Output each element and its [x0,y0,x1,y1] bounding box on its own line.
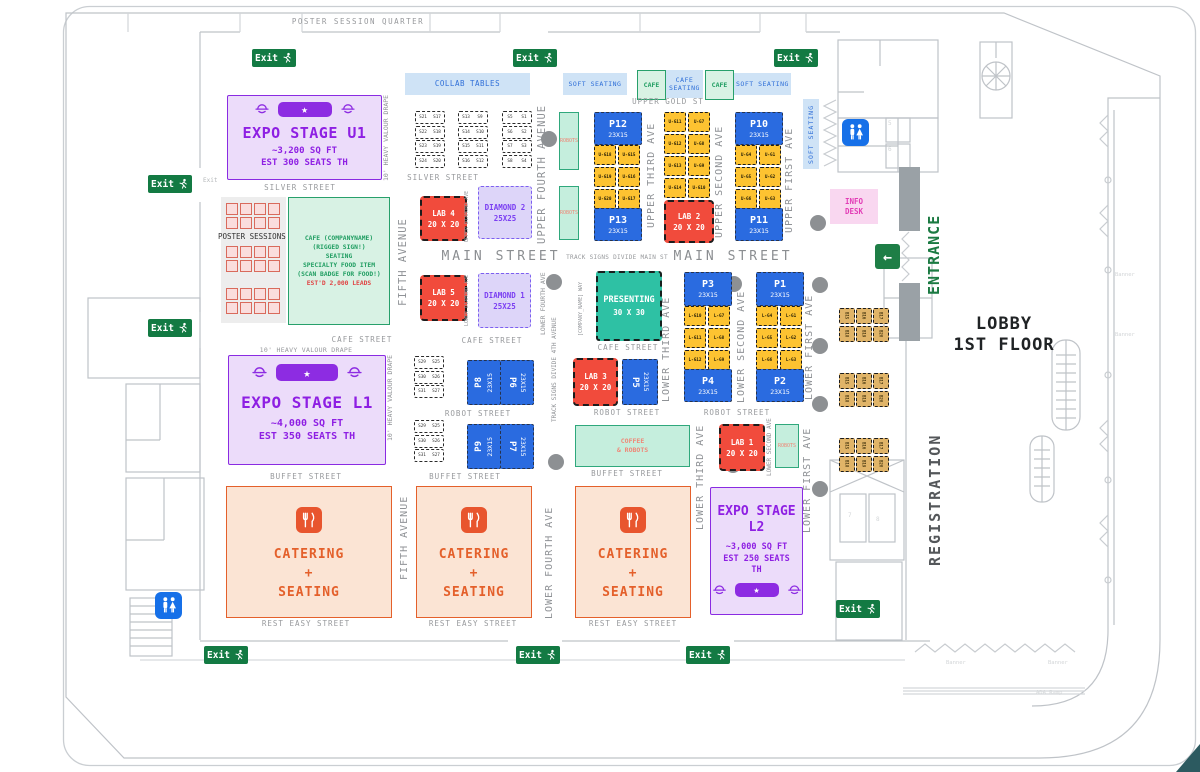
exit-text: Exit [151,179,174,190]
info-desk-line1: INFO [845,197,863,207]
pavilion-size: 23X15 [698,291,718,299]
booth-row[interactable]: S16S12 [458,155,488,168]
poster-session-quarter-label: POSTER SESSION QUARTER [292,17,424,26]
booth-row[interactable]: L-G4L-G1 [756,306,802,326]
cafe-zone[interactable]: CAFE [705,70,734,100]
banner-note: Banner [946,660,966,666]
booth-label: L-G6 [756,350,778,370]
booth-row[interactable]: S22S18 [415,126,445,139]
lobby-line2: 1ST FLOOR [945,335,1063,356]
pavilion-p8[interactable]: P8 23X15 [467,360,501,405]
catering-line1: CATERING [439,545,510,564]
elevator-8-label: 8 [876,516,880,523]
booth-label: U-G20 [594,189,616,209]
catering-line1: CATERING [274,545,345,564]
booth-row[interactable]: S13S9 [458,111,488,124]
poster-table [226,288,238,300]
pavilion-size: 23X15 [749,131,769,139]
booth-row[interactable]: S29S25 [414,420,444,433]
booth-row[interactable]: U-G5U-G2 [735,167,781,187]
booth-cell[interactable]: B16 [856,438,872,454]
stage-star-badge: ★ [276,364,338,381]
robot-street-label: ROBOT STREET [445,409,511,418]
exit-text: Exit [777,53,800,64]
diamond-name: DIAMOND 1 [484,290,525,301]
booth-row[interactable]: U-G13U-G9 [664,156,710,176]
pavilion-name: P5 [630,377,640,388]
lab-name: LAB 5 [432,287,455,298]
booth-label: S24 [416,156,430,167]
lower-fourth-ave-label: LOWER FOURTH AVE [539,272,547,336]
booth-label: S20 [430,156,444,167]
pavilion-name: P2 [774,376,786,387]
poster-table [268,203,280,215]
exit-text: Exit [151,323,174,334]
booth-label: S27 [429,386,443,397]
stage-l2-title-line2: L2 [717,520,795,536]
poster-sessions-label: POSTER SESSIONS [218,232,286,241]
rest-easy-street-label: REST EASY STREET [262,619,350,628]
booth-label: L-G1 [780,306,802,326]
booth-row[interactable]: U-G6U-G3 [735,189,781,209]
lower-first-ave-label: LOWER FIRST AVE [804,296,815,398]
booth-row[interactable]: S21S17 [415,111,445,124]
entrance-arrow-icon: ← [875,244,900,269]
pavilion-size: 23X15 [642,372,650,392]
poster-table [254,302,266,314]
catering-line2: + [439,564,510,583]
b-booth-cluster: B15B16B17B18B19B20 [839,373,889,407]
cafe-street-label: CAFE STREET [598,343,659,352]
poster-table [226,217,238,229]
booth-row[interactable]: S31S27 [414,385,444,398]
lab-3[interactable]: LAB 3 20 X 20 [573,358,618,406]
lab-1[interactable]: LAB 1 20 X 20 [719,424,765,471]
cafe-seating-zone[interactable]: CAFE SEATING [666,70,703,98]
booth-label: S6 [503,127,517,138]
booth-label: S4 [517,156,531,167]
fork-knife-icon [461,507,487,533]
exit-note: Exit [203,177,217,184]
cafe-block-line: (RIGGED SIGN!) [312,243,365,252]
booth-cell[interactable]: B20 [873,326,889,342]
running-man-icon [715,649,727,661]
b-booth-cluster: B15B16B17B18B19B20 [839,438,889,472]
poster-table [254,203,266,215]
coffee-robots-zone[interactable]: COFFEE & ROBOTS [575,425,690,467]
stage-l1-title: EXPO STAGE L1 [241,393,373,412]
booth-row[interactable]: S31S27 [414,449,444,462]
drape-label-u1: 10' HEAVY VALOUR DRAPE [382,94,390,182]
presenting-zone[interactable]: PRESENTING 30 X 30 [596,271,662,341]
exit-sign: Exit [204,646,248,664]
booth-label: L-G2 [780,328,802,348]
booth-row[interactable]: S6S2 [502,126,532,139]
booth-row[interactable]: U-G14U-G10 [664,178,710,198]
booth-row[interactable]: L-G11L-G8 [684,328,730,348]
pavilion-p12[interactable]: P12 23X15 [594,112,642,145]
exit-sign: Exit [686,646,730,664]
poster-table [240,260,252,272]
banner-note: Banner [1115,332,1135,338]
running-man-icon [177,178,189,190]
speaker-icon [251,367,268,379]
soft-seating-zone[interactable]: SOFT SEATING [563,73,627,95]
booth-label: S30 [415,372,429,383]
pavilion-size: 23X15 [519,437,527,457]
buffet-street-label: BUFFET STREET [270,472,342,481]
expo-stage-l1[interactable]: ★ EXPO STAGE L1 ~4,000 SQ FT EST 350 SEA… [228,355,386,465]
cafe-street-label: CAFE STREET [332,335,393,344]
booth-row[interactable]: L-G12L-G9 [684,350,730,370]
cafe-block-line: (SCAN BADGE FOR FOOD!) [297,270,380,279]
catering-line3: SEATING [439,583,510,602]
booth-label: U-G4 [735,145,757,165]
buffet-street-label: BUFFET STREET [591,469,663,478]
collab-tables-zone[interactable]: COLLAB TABLES [405,73,530,95]
booth-cell[interactable]: B19 [856,456,872,472]
speaker-icon [712,585,727,596]
booth-label: U-G14 [664,178,686,198]
booth-cell[interactable]: B18 [839,391,855,407]
cafe-zone[interactable]: CAFE [637,70,666,100]
pavilion-name: P3 [702,279,714,290]
speaker-icon [254,104,270,115]
booth-label: U-G15 [618,145,640,165]
booth-row[interactable]: L-G6L-G3 [756,350,802,370]
entrance-wall-segment [899,283,920,341]
silver-booth-group-1: S21S17S22S18S23S19S24S20 [415,111,445,169]
booth-label: U-G11 [664,112,686,132]
lab-5[interactable]: LAB 5 20 X 20 [420,275,467,321]
pavilion-name: P13 [609,215,627,226]
expo-stage-l2[interactable]: EXPO STAGE L2 ~3,000 SQ FT EST 250 SEATS… [710,487,803,615]
soft-seating-vertical-label: SOFT SEATING [807,105,815,164]
pavilion-name: P8 [474,377,484,388]
diamond-size: 25X25 [493,301,516,312]
cafe-block-leads: EST'D 2,000 LEADS [307,279,371,288]
elevator-5-label: 5 [888,120,892,127]
booth-label: U-G10 [688,178,710,198]
booth-cell[interactable]: B17 [873,373,889,389]
lab-4[interactable]: LAB 4 20 X 20 [420,196,467,241]
upper-gold-st-label: UPPER GOLD ST [632,97,704,106]
booth-cell[interactable]: B16 [856,308,872,324]
pavilion-p10[interactable]: P10 23X15 [735,112,783,145]
booth-label: S18 [430,127,444,138]
lobby-label: LOBBY 1ST FLOOR [945,314,1063,356]
upper-fourth-avenue-label: UPPER FOURTH AVENUE [536,110,548,238]
lab-2[interactable]: LAB 2 20 X 20 [664,200,714,243]
cafe-seating-line1: CAFE [676,76,694,84]
lower-third-ave-label: LOWER THIRD AVE [661,300,672,398]
lab-name: LAB 2 [678,211,701,222]
poster-table [240,246,252,258]
booth-row[interactable]: U-G18U-G15 [594,145,640,165]
robot-street-label: ROBOT STREET [704,408,770,417]
lab-size: 20 X 20 [726,448,758,459]
diamond-name: DIAMOND 2 [485,202,526,213]
running-man-icon [542,52,554,64]
booth-cell[interactable]: B17 [873,438,889,454]
robots-zone[interactable]: ROBOTS [775,424,799,468]
booth-label: S25 [429,357,443,368]
booth-row[interactable]: S30S26 [414,371,444,384]
pavilion-name: P11 [750,215,768,226]
booth-label: U-G19 [594,167,616,187]
catering-seating-zone-2[interactable]: CATERING + SEATING [416,486,532,618]
lab-name: LAB 1 [731,437,754,448]
main-street-label: MAIN STREET [441,249,560,264]
upper-g-booths-left: U-G18U-G15U-G19U-G16U-G20U-G17 [594,145,640,211]
expo-stage-u1[interactable]: ★ EXPO STAGE U1 ~3,200 SQ FT EST 300 SEA… [227,95,382,180]
booth-label: S8 [503,156,517,167]
exit-text: Exit [689,650,712,661]
booth-label: S11 [473,141,487,152]
booth-row[interactable]: S15S11 [458,140,488,153]
booth-row[interactable]: U-G19U-G16 [594,167,640,187]
pavilion-size: 23X15 [486,437,494,457]
pavilion-name: P12 [609,119,627,130]
expo-floor-plan: 5 6 7 8 Banner Banner Banner Banner ADA … [0,0,1200,772]
booth-row[interactable]: S8S4 [502,155,532,168]
info-desk[interactable]: INFO DESK [830,189,878,224]
booth-row[interactable]: S24S20 [415,155,445,168]
restroom-icon [842,119,869,146]
booth-row[interactable]: U-G4U-G1 [735,145,781,165]
entrance-label: ENTRANCE [925,203,943,307]
booth-cell[interactable]: B20 [873,456,889,472]
registration-label: REGISTRATION [926,410,944,590]
pavilion-p4[interactable]: P4 23X15 [684,369,732,402]
diamond-size: 25X25 [494,213,517,224]
exit-text: Exit [516,53,539,64]
pavilion-p2[interactable]: P2 23X15 [756,369,804,402]
track-signs-4th-note: TRACK SIGNS DIVIDE 4TH AVENUE [551,312,558,427]
booth-row[interactable]: L-G5L-G2 [756,328,802,348]
lab-size: 20 X 20 [580,382,612,393]
speaker-icon [340,104,356,115]
lobby-line1: LOBBY [945,314,1063,335]
booth-label: S5 [503,112,517,123]
diamond-2[interactable]: DIAMOND 2 25X25 [478,186,532,239]
drape-label-l1-top: 10' HEAVY VALOUR DRAPE [260,346,353,354]
exit-sign: Exit [516,646,560,664]
exit-text: Exit [255,53,278,64]
booth-row[interactable]: U-G12U-G8 [664,134,710,154]
booth-label: S26 [429,372,443,383]
booth-row[interactable]: S7S3 [502,140,532,153]
booth-label: L-G4 [756,306,778,326]
booth-row[interactable]: S5S1 [502,111,532,124]
stage-u1-seats: EST 300 SEATS TH [261,158,348,168]
booth-row[interactable]: U-G20U-G17 [594,189,640,209]
pavilion-size: 23X15 [749,227,769,235]
booth-label: S15 [459,141,473,152]
pavilion-size: 23X15 [770,388,790,396]
stage-l2-seats-line2: TH [723,565,790,576]
upper-diamond-ave-label: UPPER DIAMOND AVE [464,196,470,236]
booth-label: S22 [416,127,430,138]
poster-table-cluster [226,246,280,272]
speaker-icon [346,367,363,379]
restroom-icon [155,592,182,619]
booth-label: S16 [459,156,473,167]
booth-label: L-G7 [708,306,730,326]
booth-cell[interactable]: B18 [839,456,855,472]
booth-label: U-G18 [594,145,616,165]
pavilion-size: 23X15 [608,227,628,235]
pavilion-p3[interactable]: P3 23X15 [684,272,732,306]
stage-l1-sqft: ~4,000 SQ FT [271,418,343,429]
silver-street-label: SILVER STREET [264,183,336,192]
pavilion-p13[interactable]: P13 23X15 [594,208,642,241]
booth-label: S29 [415,357,429,368]
booth-row[interactable]: S30S26 [414,435,444,448]
booth-label: S19 [430,141,444,152]
booth-cell[interactable]: B17 [873,308,889,324]
booth-label: U-G3 [759,189,781,209]
booth-cell[interactable]: B19 [856,326,872,342]
booth-row[interactable]: S29S25 [414,356,444,369]
exit-sign: Exit [252,49,296,67]
pavilion-size: 23X15 [698,388,718,396]
catering-line2: + [274,564,345,583]
cafe-street-label: CAFE STREET [462,336,523,345]
booth-cell[interactable]: B18 [839,326,855,342]
poster-table-cluster [226,288,280,314]
booth-row[interactable]: S14S10 [458,126,488,139]
pavilion-name: P4 [702,376,714,387]
soft-seating-vertical-zone[interactable]: SOFT SEATING [803,99,819,169]
lower-g-booths-left: L-G10L-G7L-G11L-G8L-G12L-G9 [684,306,730,372]
booth-row[interactable]: S23S19 [415,140,445,153]
presenting-name: PRESENTING [603,295,654,305]
cafe-company-block[interactable]: CAFE (COMPANYNAME) (RIGGED SIGN!) SEATIN… [288,197,390,325]
booth-label: L-G9 [708,350,730,370]
poster-table [240,302,252,314]
running-man-icon [803,52,815,64]
poster-table [226,203,238,215]
poster-table [268,246,280,258]
elevator-6-label: 6 [888,146,892,153]
booth-row[interactable]: L-G10L-G7 [684,306,730,326]
catering-seating-zone-1[interactable]: CATERING + SEATING [226,486,392,618]
pavilion-size: 23X15 [486,373,494,393]
main-street-label: MAIN STREET [673,249,792,264]
coffee-line2: & ROBOTS [617,446,648,455]
booth-label: S9 [473,112,487,123]
rest-easy-street-label: REST EASY STREET [589,619,677,628]
booth-label: S12 [473,156,487,167]
exit-sign: Exit [774,49,818,67]
diamond-1[interactable]: DIAMOND 1 25X25 [478,273,531,328]
booth-cell[interactable]: B15 [839,308,855,324]
poster-table [268,288,280,300]
lower-first-ave-label: LOWER FIRST AVE [802,435,813,525]
exit-text: Exit [207,650,230,661]
entrance-wall-segment [899,167,920,231]
lower-diamond-ave-label: LOWER DIAMOND AVE [464,278,470,322]
coffee-line1: COFFEE [621,437,644,446]
lab-size: 20 X 20 [428,298,460,309]
booth-label: U-G5 [735,167,757,187]
pavilion-p11[interactable]: P11 23X15 [735,208,783,241]
poster-table [254,288,266,300]
pavilion-p5[interactable]: P5 23X15 [622,359,658,405]
upper-g-booths-mid: U-G11U-G7U-G12U-G8U-G13U-G9U-G14U-G10 [664,112,710,200]
pavilion-name: P1 [774,279,786,290]
booth-label: S25 [429,421,443,432]
poster-table [254,246,266,258]
booth-label: S30 [415,436,429,447]
booth-label: S31 [415,450,429,461]
booth-label: U-G8 [688,134,710,154]
booth-cell[interactable]: B15 [839,438,855,454]
booth-label: L-G12 [684,350,706,370]
poster-table [240,217,252,229]
poster-table [254,260,266,272]
lower-g-booths-right: L-G4L-G1L-G5L-G2L-G6L-G3 [756,306,802,372]
booth-cell[interactable]: B20 [873,391,889,407]
stage-u1-title: EXPO STAGE U1 [243,124,367,142]
pavilion-name: P10 [750,119,768,130]
booth-cell[interactable]: B19 [856,391,872,407]
booth-cell[interactable]: B15 [839,373,855,389]
booth-label: S7 [503,141,517,152]
robots-zone[interactable]: ROBOTS [559,186,579,240]
booth-row[interactable]: U-G11U-G7 [664,112,710,132]
upper-first-ave-label: UPPER FIRST AVE [784,131,795,229]
poster-table [268,260,280,272]
booth-label: S27 [429,450,443,461]
lab-size: 20 X 20 [673,222,705,233]
lab-name: LAB 4 [432,208,455,219]
stage-star-badge: ★ [735,583,779,597]
info-desk-line2: DESK [845,207,863,217]
booth-label: L-G11 [684,328,706,348]
stage-l2-seats-line1: EST 250 SEATS [723,554,790,565]
stage-l2-title-line1: EXPO STAGE [717,504,795,520]
pavilion-p6[interactable]: P6 23X15 [500,360,534,405]
exit-sign: Exit [836,600,880,618]
booth-label: L-G8 [708,328,730,348]
pavilion-p9[interactable]: P9 23X15 [467,424,501,469]
fifth-avenue-label: FIFTH AVENUE [397,215,409,310]
booth-label: S26 [429,436,443,447]
running-man-icon [865,603,877,615]
cafe-booth-group-2: S29S25S30S26S31S27 [414,420,444,464]
booth-label: U-G13 [664,156,686,176]
pavilion-size: 23X15 [519,373,527,393]
exit-text: Exit [839,604,862,615]
lab-size: 20 X 20 [428,219,460,230]
booth-cell[interactable]: B16 [856,373,872,389]
catering-seating-zone-3[interactable]: CATERING + SEATING [575,486,691,618]
cafe-block-line: SPECIALTY FOOD ITEM [303,261,375,270]
upper-second-ave-label: UPPER SECOND AVE [714,132,725,232]
robots-zone[interactable]: ROBOTS [559,112,579,170]
pavilion-p1[interactable]: P1 23X15 [756,272,804,306]
soft-seating-zone[interactable]: SOFT SEATING [734,73,791,95]
speaker-icon [787,585,802,596]
booth-label: S21 [416,112,430,123]
lower-second-ave-label: LOWER SECOND AVE [736,293,747,401]
lab-name: LAB 3 [584,371,607,382]
stage-l2-sqft: ~3,000 SQ FT [726,542,787,552]
pavilion-p7[interactable]: P7 23X15 [500,424,534,469]
stage-l1-seats: EST 350 SEATS TH [259,431,355,442]
